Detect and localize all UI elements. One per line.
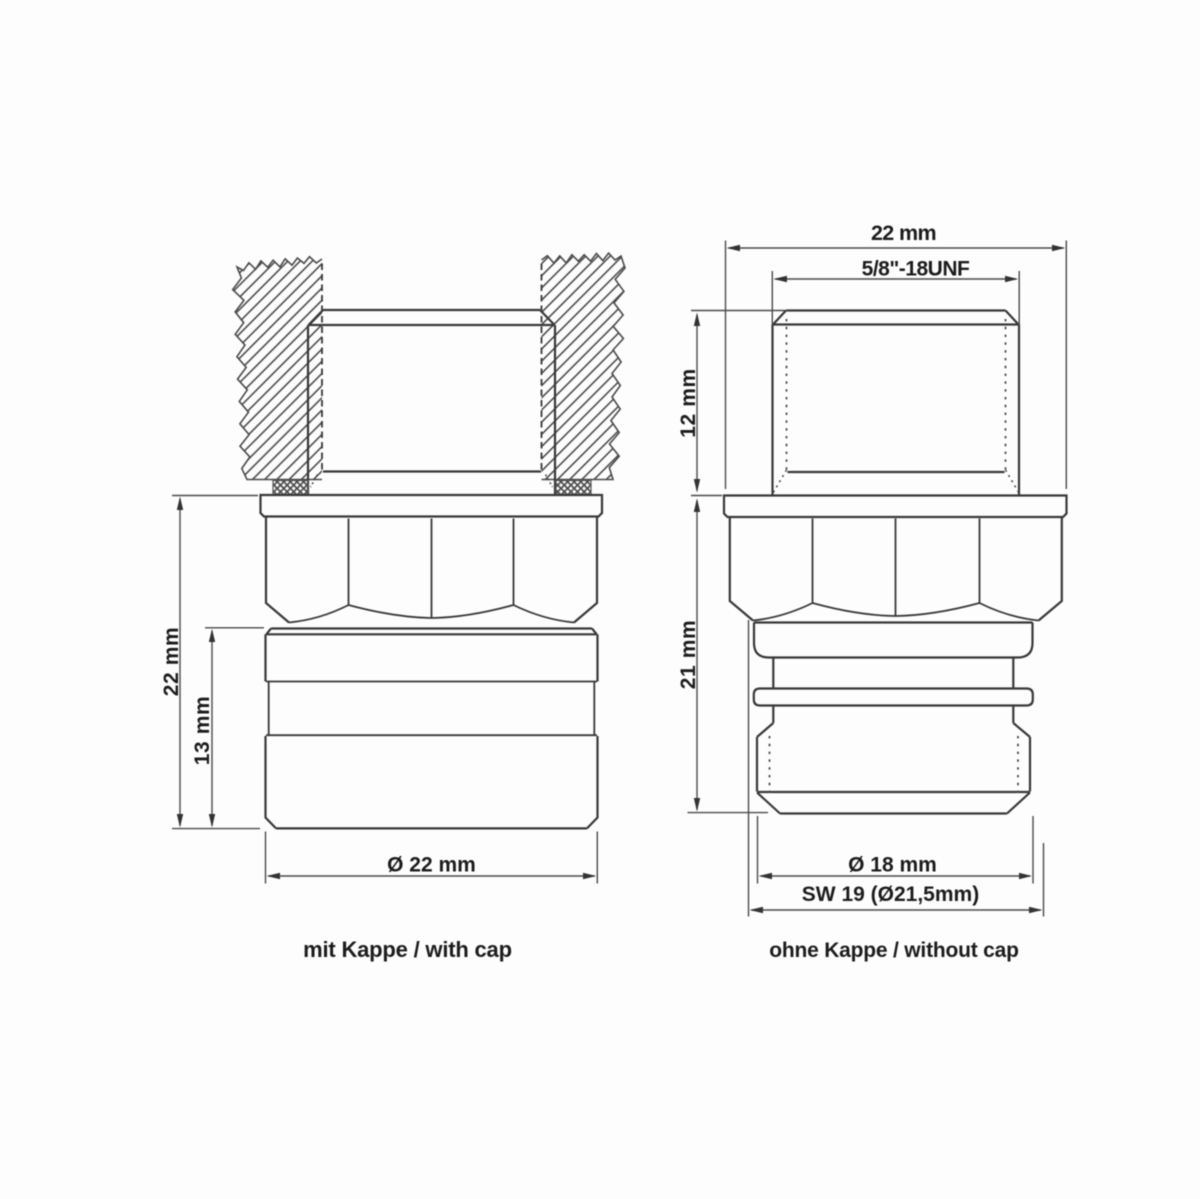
- svg-text:ohne Kappe / without cap: ohne Kappe / without cap: [769, 939, 1019, 962]
- svg-text:22 mm: 22 mm: [871, 221, 936, 245]
- svg-text:22 mm: 22 mm: [160, 627, 183, 697]
- svg-text:12 mm: 12 mm: [677, 368, 700, 438]
- svg-text:13 mm: 13 mm: [191, 696, 214, 766]
- svg-text:21 mm: 21 mm: [677, 620, 700, 690]
- svg-text:5/8"-18UNF: 5/8"-18UNF: [862, 258, 970, 281]
- svg-text:Ø 22 mm: Ø 22 mm: [387, 854, 476, 877]
- svg-text:mit Kappe / with cap: mit Kappe / with cap: [303, 937, 512, 962]
- svg-text:SW 19 (Ø21,5mm): SW 19 (Ø21,5mm): [802, 883, 979, 906]
- svg-text:Ø 18 mm: Ø 18 mm: [848, 854, 937, 877]
